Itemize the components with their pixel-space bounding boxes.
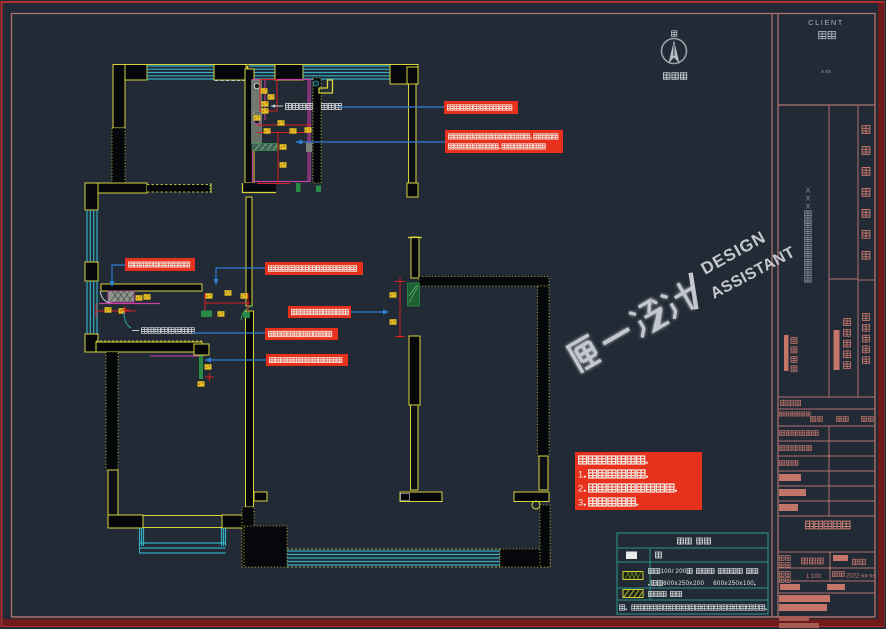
svg-text:x: x bbox=[739, 581, 742, 587]
svg-text:x: x bbox=[689, 581, 692, 587]
svg-text:3: 3 bbox=[578, 497, 583, 507]
svg-text:x: x bbox=[675, 581, 678, 587]
svg-text:2: 2 bbox=[578, 483, 583, 493]
svg-text:x.xx: x.xx bbox=[821, 69, 831, 75]
svg-text:1: 1 bbox=[578, 469, 583, 479]
svg-text:CLIENT: CLIENT bbox=[808, 18, 844, 27]
svg-text:1:100: 1:100 bbox=[806, 574, 822, 580]
svg-text:X: X bbox=[805, 202, 810, 211]
svg-text:2022-xx-xx: 2022-xx-xx bbox=[846, 574, 875, 580]
svg-text:x: x bbox=[724, 581, 727, 587]
